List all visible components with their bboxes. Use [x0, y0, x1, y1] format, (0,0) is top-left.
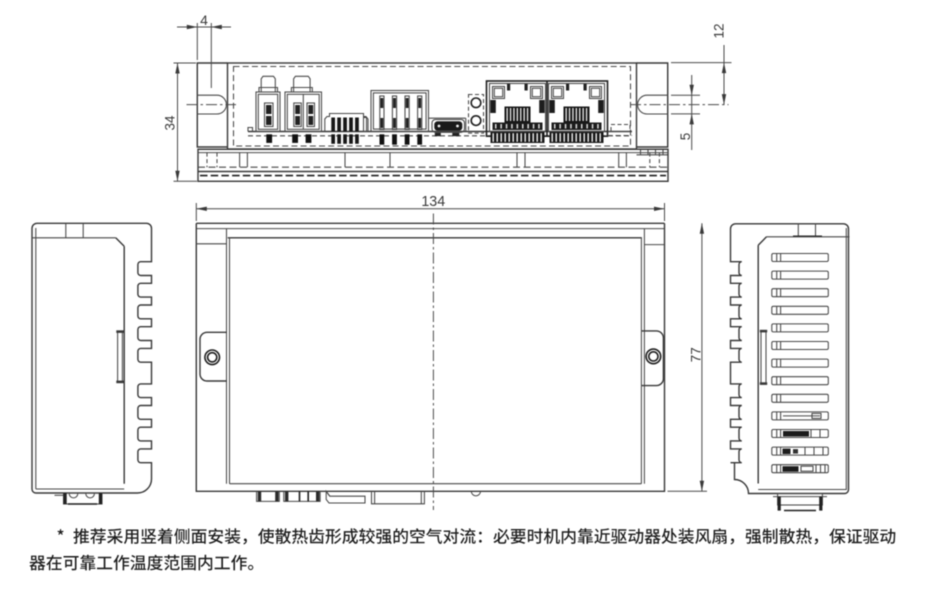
- svg-text:134: 134: [421, 194, 445, 210]
- svg-text:4: 4: [200, 12, 208, 28]
- svg-text:34: 34: [162, 115, 177, 131]
- svg-text:5: 5: [678, 133, 693, 141]
- svg-text:77: 77: [688, 347, 703, 362]
- svg-text:12: 12: [712, 23, 727, 38]
